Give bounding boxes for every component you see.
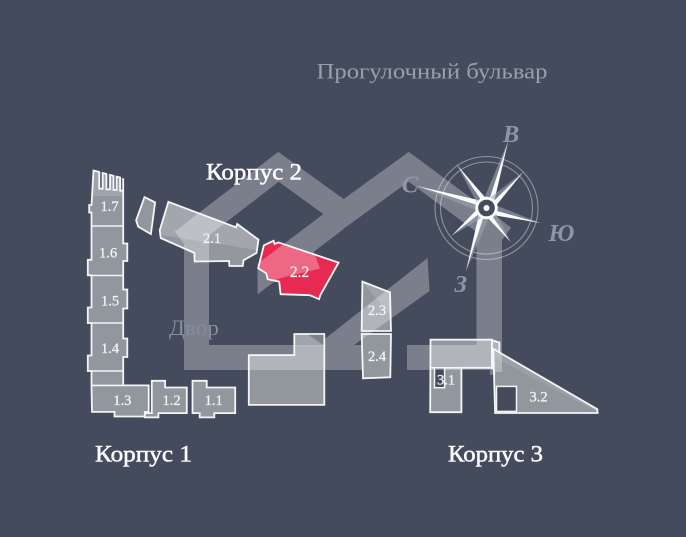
svg-text:2.2: 2.2	[290, 264, 309, 281]
svg-text:2.4: 2.4	[368, 349, 387, 365]
svg-text:1.3: 1.3	[113, 393, 131, 409]
svg-text:В: В	[502, 121, 519, 148]
svg-text:1.7: 1.7	[100, 199, 118, 215]
svg-text:Ю: Ю	[548, 220, 575, 247]
svg-text:С: С	[402, 172, 419, 199]
svg-text:1.4: 1.4	[101, 341, 120, 357]
svg-text:1.1: 1.1	[205, 393, 223, 409]
svg-text:Корпус 3: Корпус 3	[448, 442, 543, 467]
svg-text:2.3: 2.3	[368, 303, 386, 319]
svg-text:1.5: 1.5	[101, 294, 119, 310]
svg-text:З: З	[454, 271, 467, 298]
svg-text:Корпус 1: Корпус 1	[95, 442, 192, 467]
svg-text:1.2: 1.2	[163, 393, 181, 409]
svg-text:1.6: 1.6	[99, 246, 117, 262]
svg-text:Прогулочный бульвар: Прогулочный бульвар	[317, 59, 548, 84]
svg-text:Корпус 2: Корпус 2	[206, 160, 302, 185]
svg-text:2.1: 2.1	[203, 231, 221, 247]
svg-text:Двор: Двор	[169, 315, 219, 340]
svg-text:3.1: 3.1	[437, 373, 455, 389]
svg-text:3.2: 3.2	[529, 390, 547, 406]
